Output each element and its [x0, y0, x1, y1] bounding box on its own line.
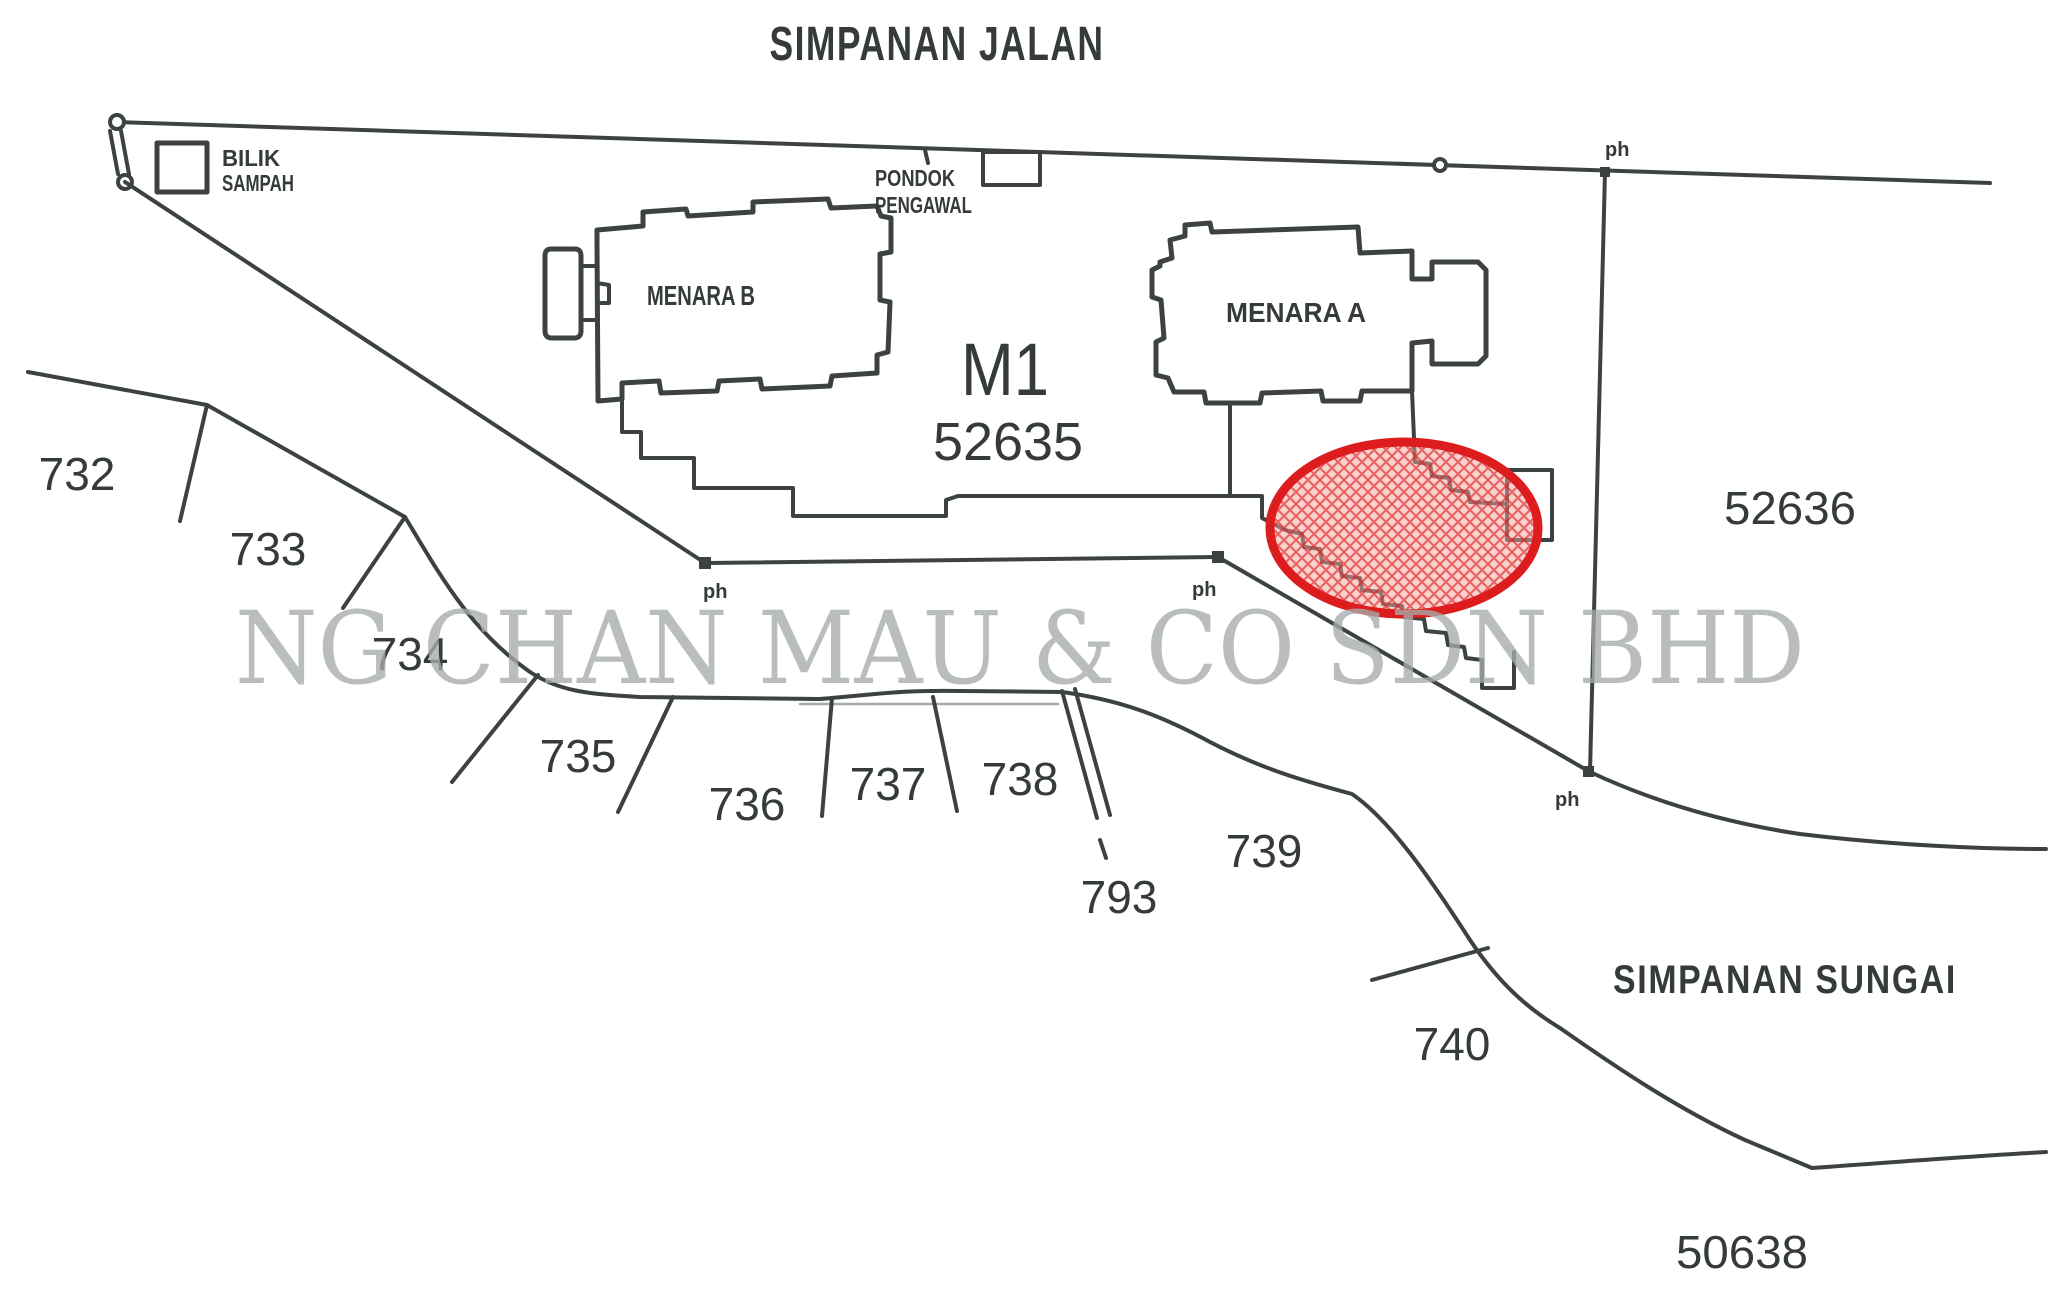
guard-house-label-line2: PENGAWAL: [875, 192, 972, 218]
lot-number-733: 733: [230, 523, 307, 575]
spur-735-736: [618, 697, 673, 812]
top-boundary-tick: [925, 150, 928, 163]
east-boundary-curve: [1590, 772, 2046, 849]
lot-number-739: 739: [1226, 825, 1303, 877]
building-block-label: M1: [961, 328, 1049, 411]
tower-a-label: MENARA A: [1226, 297, 1366, 328]
traverse-line-middle: [705, 557, 1218, 563]
bin-room-label-line2: SAMPAH: [222, 170, 294, 196]
guard-house-label-line1: PONDOK: [875, 165, 955, 191]
survey-dot-west: [699, 557, 711, 569]
tower-b-label: MENARA B: [647, 280, 755, 311]
east-lot-number: 52636: [1724, 482, 1856, 534]
survey-dot-north: [1600, 167, 1610, 177]
lot-number-732: 732: [39, 448, 116, 500]
corner-double-tick-2: [121, 131, 129, 174]
site-plan-page: SIMPANAN JALAN SIMPANAN SUNGAI BILIK SAM…: [0, 0, 2048, 1297]
lot-number-735: 735: [540, 730, 617, 782]
lot-number-736: 736: [709, 778, 786, 830]
top-line-survey-circle: [1434, 159, 1446, 171]
spur-740: [1372, 948, 1488, 980]
survey-mark-ph-north: ph: [1605, 139, 1629, 161]
highlighted-unit-ellipse: [1270, 442, 1538, 614]
tower-b-annex: [545, 249, 581, 338]
top-boundary-line: [117, 122, 1990, 183]
lot-number-737: 737: [850, 758, 927, 810]
spur-737-738: [933, 697, 957, 811]
lot-number-740: 740: [1414, 1018, 1491, 1070]
lot-number-793: 793: [1081, 871, 1158, 923]
main-lot-number: 52635: [933, 412, 1083, 472]
survey-dot-middle: [1212, 551, 1224, 563]
survey-dot-southeast: [1583, 766, 1594, 777]
corner-survey-circle-top: [110, 115, 124, 129]
bin-room-label-line1: BILIK: [222, 145, 280, 171]
guard-house-box: [983, 152, 1040, 185]
spur-732-733: [180, 405, 207, 521]
corner-double-tick-1: [110, 131, 118, 174]
spur-736-737: [822, 698, 832, 816]
road-reserve-label: SIMPANAN JALAN: [770, 18, 1105, 71]
site-plan-drawing: SIMPANAN JALAN SIMPANAN SUNGAI BILIK SAM…: [0, 0, 2048, 1297]
lot-number-738: 738: [982, 753, 1059, 805]
survey-mark-ph-southeast: ph: [1555, 789, 1579, 811]
tick-793: [1100, 840, 1106, 858]
watermark-text: NG CHAN MAU & CO SDN BHD: [235, 590, 1805, 707]
river-reserve-label: SIMPANAN SUNGAI: [1613, 958, 1957, 1002]
south-lot-number: 50638: [1676, 1226, 1808, 1278]
bin-room-box: [157, 143, 207, 192]
